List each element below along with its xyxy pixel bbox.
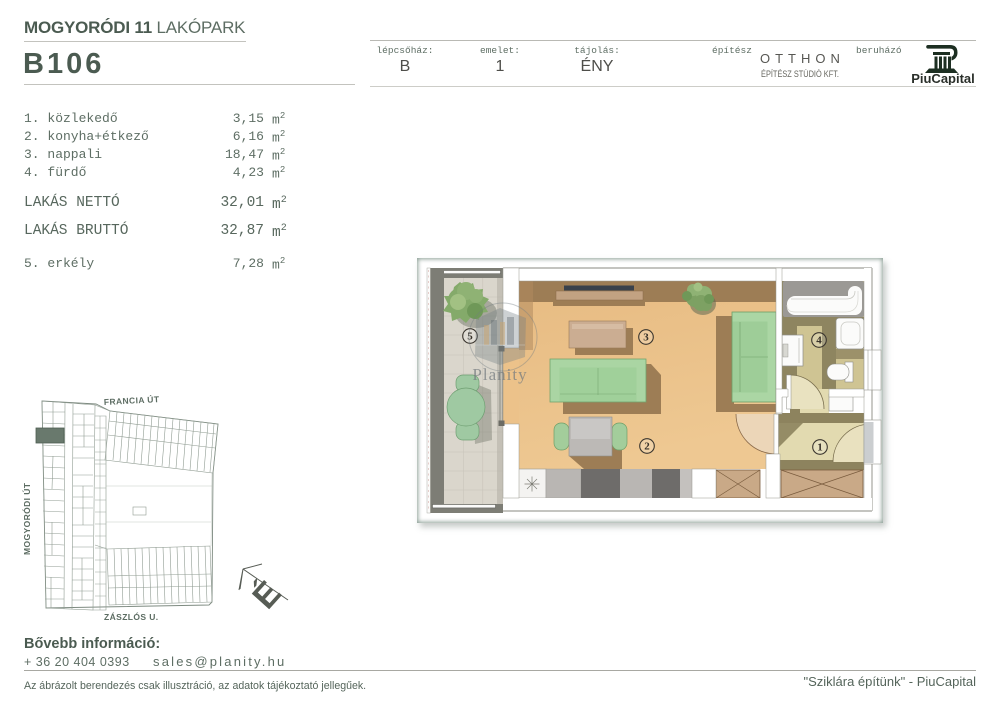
svg-text:FRANCIA ÚT: FRANCIA ÚT: [104, 393, 161, 407]
svg-text:PiuCapital: PiuCapital: [911, 71, 975, 85]
svg-text:ZÁSZLÓS U.: ZÁSZLÓS U.: [104, 611, 159, 622]
svg-text:Planity: Planity: [472, 365, 527, 384]
svg-text:4: 4: [816, 335, 822, 347]
svg-text:1: 1: [817, 442, 823, 454]
svg-text:5: 5: [467, 331, 473, 343]
svg-text:3: 3: [643, 332, 649, 344]
svg-text:2: 2: [644, 441, 650, 453]
svg-text:É: É: [245, 574, 288, 616]
svg-text:MOGYORÓDI ÚT: MOGYORÓDI ÚT: [21, 482, 32, 555]
